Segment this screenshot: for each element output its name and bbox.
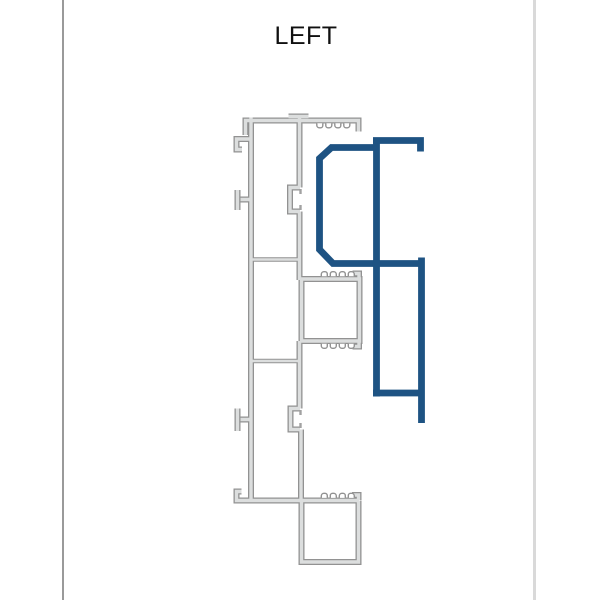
frame-divider-fill xyxy=(252,260,299,362)
profile-cross-section-svg xyxy=(0,0,600,600)
frame-divider-outline xyxy=(252,260,299,362)
drawing-page: LEFT xyxy=(0,0,600,600)
highlighted-clamp-profile xyxy=(320,148,379,264)
highlighted-frame-profile xyxy=(373,138,425,424)
